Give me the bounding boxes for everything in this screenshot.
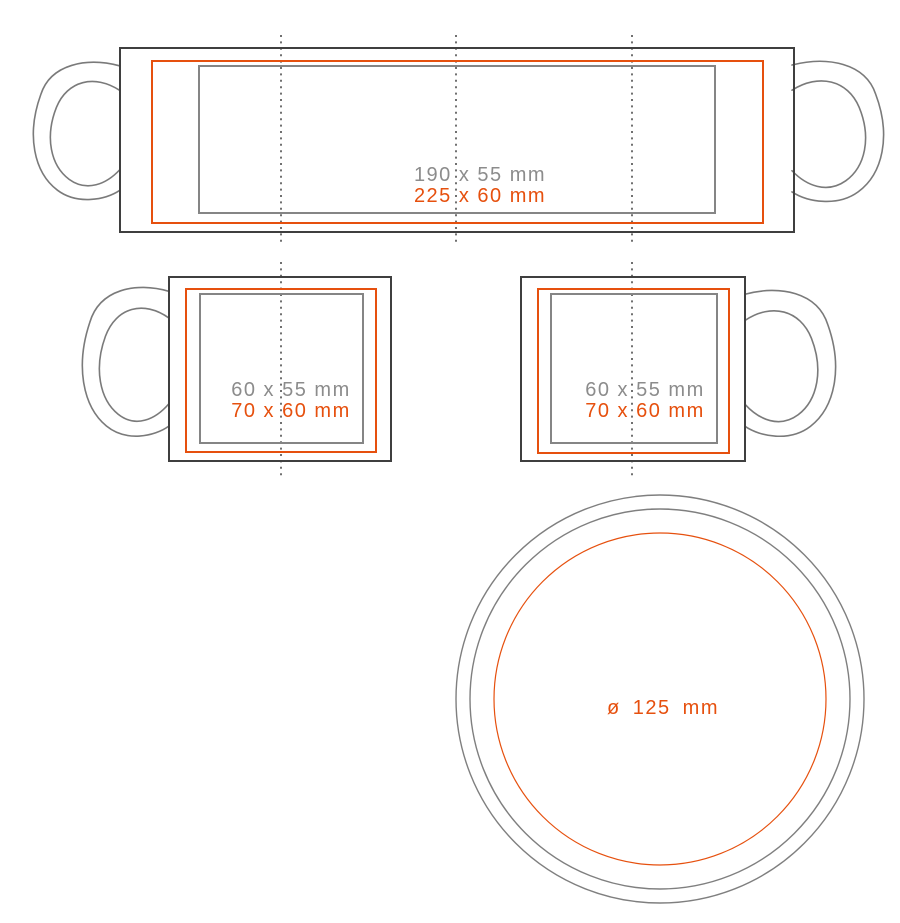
handle-outer-curve: [82, 287, 169, 436]
handle-outer-curve: [792, 61, 884, 201]
bottom-diameter-label: ø 125 mm: [560, 697, 766, 719]
wrap-print-size-label: 190 x 55 mm: [400, 165, 560, 186]
left-mug-size-labels: 60 x 55 mm 70 x 60 mm: [211, 380, 371, 422]
right-mug-size-labels: 60 x 55 mm 70 x 60 mm: [565, 380, 725, 422]
wrap-max-size-label: 225 x 60 mm: [400, 186, 560, 207]
wrap-handle-right-icon: [792, 60, 885, 206]
handle-inner-curve: [792, 81, 866, 187]
wrap-handle-left-icon: [32, 61, 120, 204]
left-mug-handle-icon: [81, 286, 169, 441]
left-mug-max-size-label: 70 x 60 mm: [211, 401, 371, 422]
handle-inner-curve: [50, 81, 120, 185]
handle-outer-curve: [745, 290, 836, 436]
handle-outer-curve: [33, 62, 120, 199]
right-mug-handle-icon: [745, 289, 837, 441]
right-mug-print-size-label: 60 x 55 mm: [565, 380, 725, 401]
wrap-size-labels: 190 x 55 mm 225 x 60 mm: [400, 165, 560, 207]
handle-inner-curve: [745, 311, 818, 422]
mug-print-area-diagram: 190 x 55 mm 225 x 60 mm 60 x 55 mm 70 x …: [0, 0, 900, 923]
handle-inner-curve: [99, 308, 169, 421]
right-mug-max-size-label: 70 x 60 mm: [565, 401, 725, 422]
left-mug-print-size-label: 60 x 55 mm: [211, 380, 371, 401]
